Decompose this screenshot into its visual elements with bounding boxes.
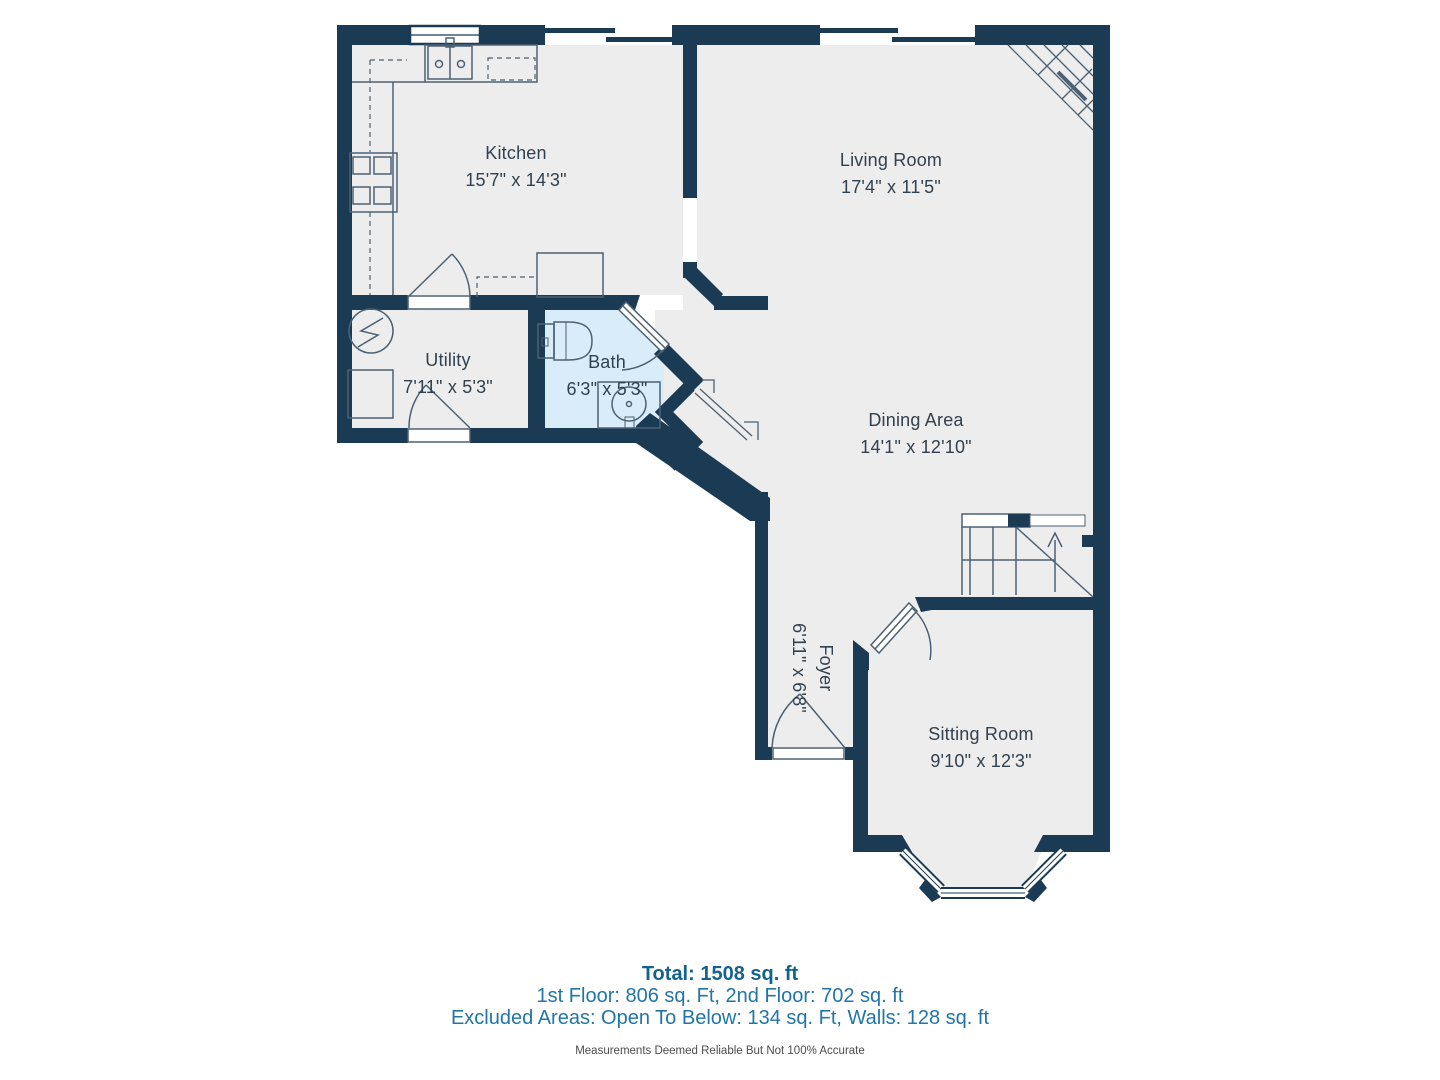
room-label-sitting: Sitting Room 9'10" x 12'3": [928, 721, 1033, 775]
area-summary: Total: 1508 sq. ft 1st Floor: 806 sq. Ft…: [0, 963, 1440, 1057]
wall-top-2: [480, 25, 545, 45]
room-name: Kitchen: [465, 140, 566, 167]
room-dims: 17'4" x 11'5": [840, 174, 942, 201]
summary-disclaimer: Measurements Deemed Reliable But Not 100…: [0, 1045, 1440, 1057]
room-label-living: Living Room 17'4" x 11'5": [840, 147, 942, 201]
wall-right: [1093, 25, 1110, 843]
bay-corner-right: [1034, 835, 1110, 852]
divider-opening: [683, 198, 697, 262]
room-label-utility: Utility 7'11" x 5'3": [403, 347, 493, 401]
room-label-kitchen: Kitchen 15'7" x 14'3": [465, 140, 566, 194]
room-label-dining: Dining Area 14'1" x 12'10": [860, 407, 972, 461]
room-dims: 7'11" x 5'3": [403, 374, 493, 401]
wall-divider-utility-bath: [528, 308, 545, 428]
room-dims: 14'1" x 12'10": [860, 434, 972, 461]
wall-left: [337, 25, 352, 443]
wall-sitting-left: [853, 655, 868, 850]
room-dims: 9'10" x 12'3": [928, 748, 1033, 775]
room-name: Dining Area: [860, 407, 972, 434]
summary-floors: 1st Floor: 806 sq. Ft, 2nd Floor: 702 sq…: [0, 985, 1440, 1007]
bay-corner-left: [853, 835, 912, 852]
room-label-bath: Bath 6'3" x 5'3": [567, 349, 648, 403]
room-name: Bath: [567, 349, 648, 376]
room-dims: 6'11" x 6'8": [785, 623, 812, 713]
room-name: Utility: [403, 347, 493, 374]
wall-foyer-left: [755, 492, 768, 760]
slider-window-1-icon: [543, 28, 672, 42]
floorplan-page: Kitchen 15'7" x 14'3" Living Room 17'4" …: [0, 0, 1440, 1080]
room-name: Foyer: [812, 623, 839, 713]
room-label-foyer: Foyer 6'11" x 6'8": [785, 623, 839, 713]
kitchen-window-icon: [410, 26, 480, 44]
room-name: Sitting Room: [928, 721, 1033, 748]
wall-divider-kitchen-living: [683, 25, 697, 198]
room-dims: 15'7" x 14'3": [465, 167, 566, 194]
room-dims: 6'3" x 5'3": [567, 376, 648, 403]
wall-top-4: [975, 25, 1110, 45]
floorplan-canvas: [0, 0, 1440, 1080]
wall-sitting-top: [928, 597, 1110, 610]
summary-excluded: Excluded Areas: Open To Below: 134 sq. F…: [0, 1007, 1440, 1029]
summary-total: Total: 1508 sq. ft: [0, 963, 1440, 985]
room-name: Living Room: [840, 147, 942, 174]
slider-window-2-icon: [818, 28, 975, 42]
